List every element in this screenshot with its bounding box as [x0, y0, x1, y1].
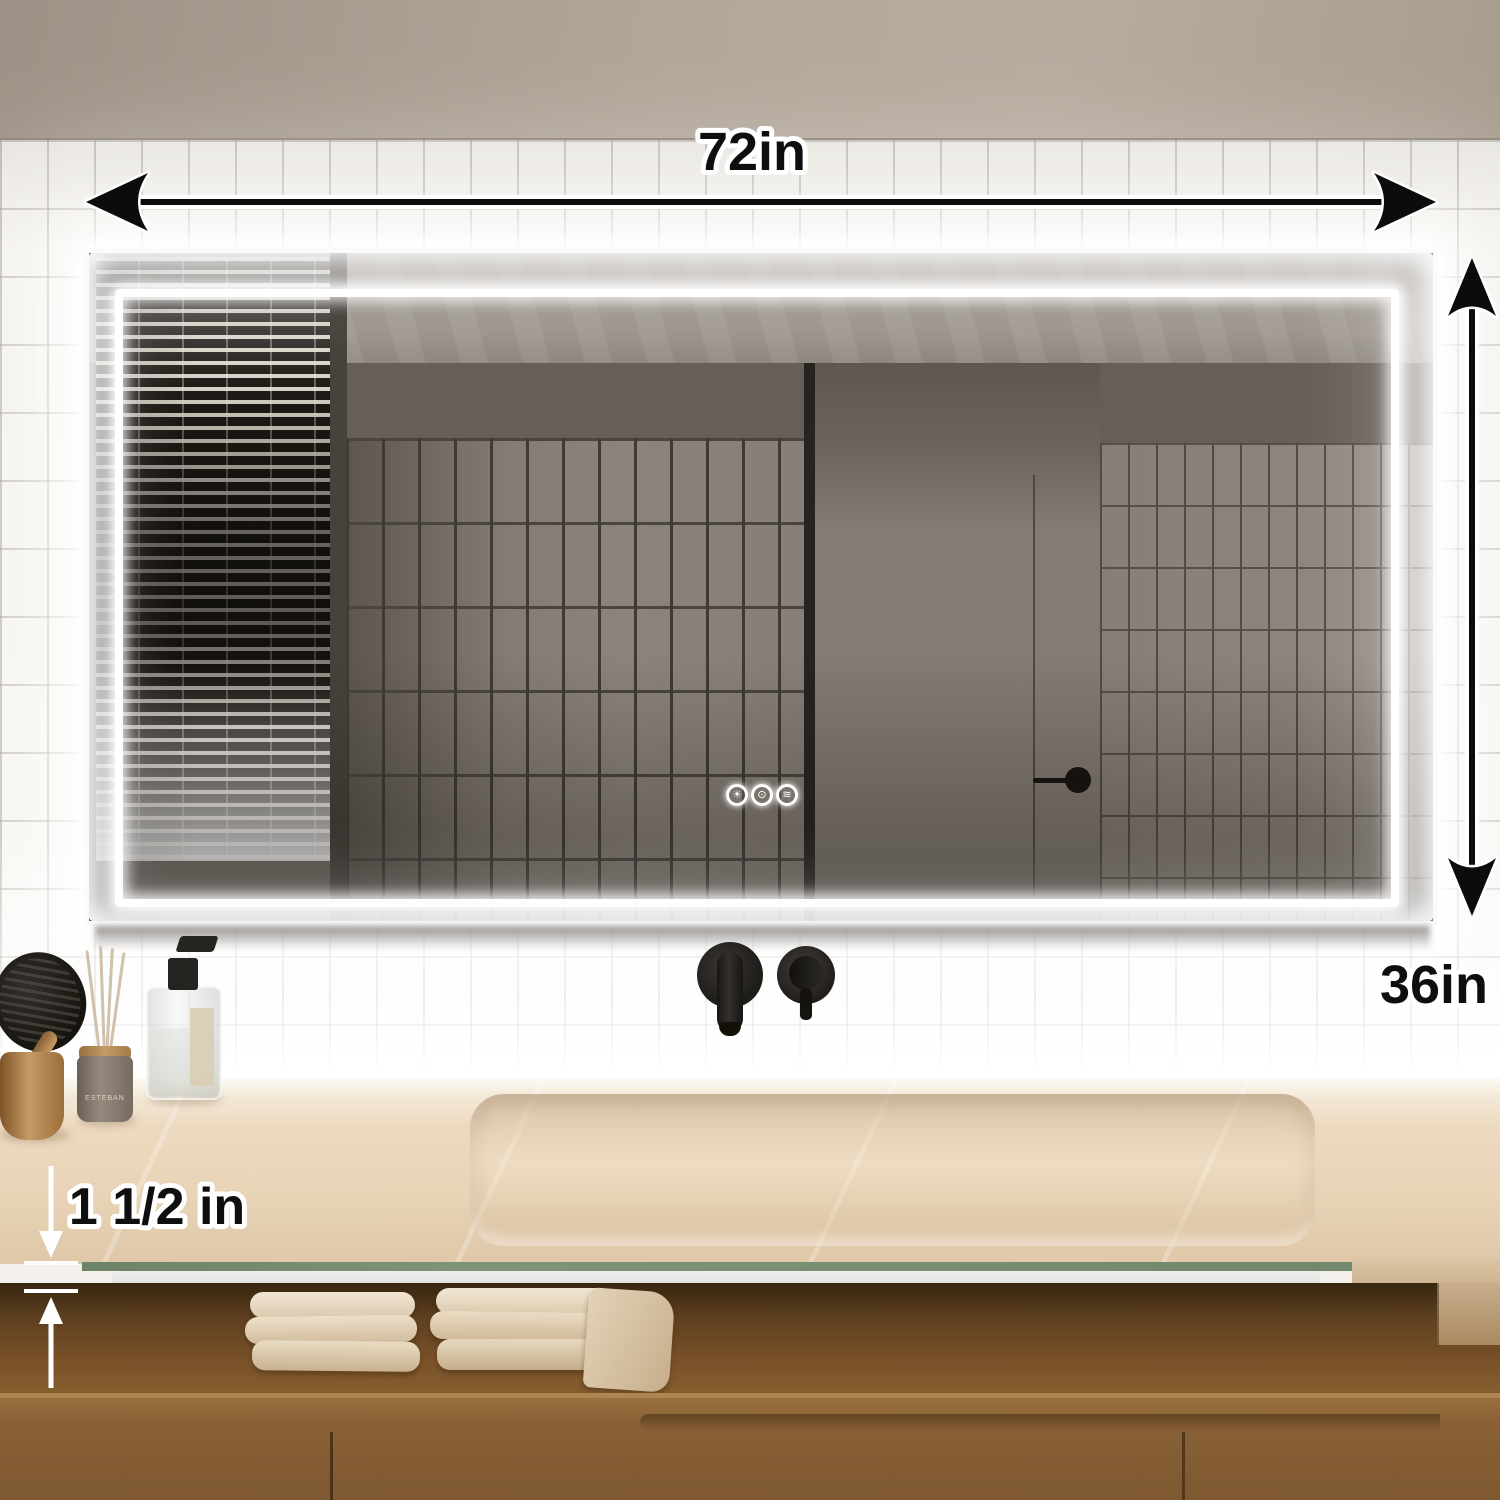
- mirror-drop-shadow: [95, 926, 1430, 950]
- edge-led-glow: [89, 253, 1433, 921]
- faucet-spout: [717, 952, 743, 1032]
- soap-label: [190, 1008, 214, 1086]
- under-mirror-light: [0, 1036, 1500, 1082]
- brightness-button: ☀: [726, 784, 748, 806]
- soap-pump-spout: [175, 936, 218, 952]
- folded-towel: [250, 1292, 415, 1318]
- vanity-open-shelf: [0, 1283, 1500, 1397]
- faucet-handle: [789, 956, 823, 990]
- color-temp-button: ⊙: [751, 784, 773, 806]
- folded-towel: [252, 1340, 420, 1372]
- vanity-drawers: [0, 1393, 1500, 1500]
- defog-button: ≋: [776, 784, 798, 806]
- drawer-seam: [330, 1432, 333, 1500]
- product-photo-led-mirror: ☀ ⊙ ≋ ESTEBAN: [0, 0, 1500, 1500]
- drawer-pull-groove: [640, 1414, 1440, 1430]
- defog-icon: ≋: [782, 789, 791, 801]
- faucet-handle-lever: [800, 988, 812, 1020]
- bulb-icon: ⊙: [757, 789, 766, 801]
- wooden-cup: [0, 1052, 64, 1140]
- ceiling: [0, 0, 1500, 140]
- mirror-glass-edge: [82, 1262, 1352, 1271]
- integrated-sink-basin: [470, 1094, 1315, 1246]
- cabinet-side-panel: [1437, 1283, 1500, 1345]
- shelf-front-edge: [0, 1393, 1500, 1398]
- soap-pump: [168, 958, 198, 990]
- sun-icon: ☀: [732, 789, 742, 801]
- reed-diffuser-jar: ESTEBAN: [77, 1056, 133, 1122]
- led-mirror: ☀ ⊙ ≋: [84, 248, 1438, 926]
- drawer-seam: [1182, 1432, 1185, 1500]
- draped-towel: [583, 1287, 676, 1393]
